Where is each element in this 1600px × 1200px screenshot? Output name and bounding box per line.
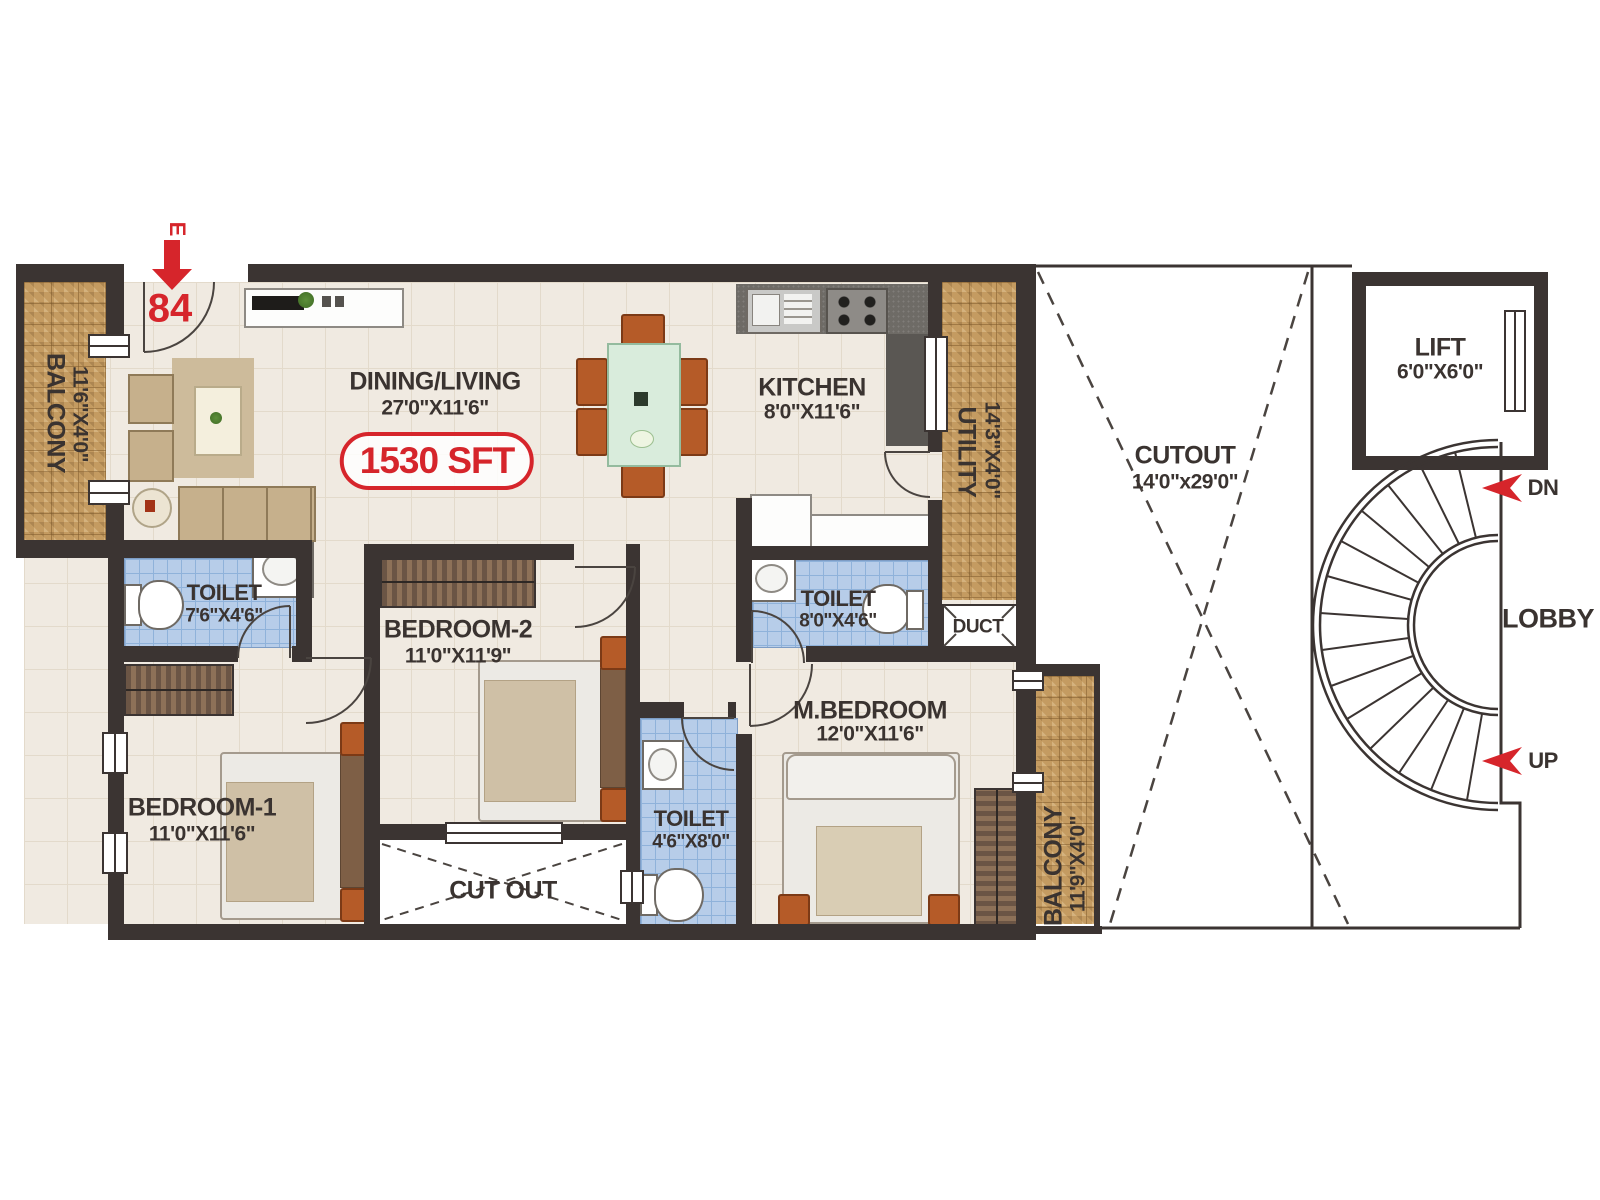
bedroom-1-label: BEDROOM-1 [128,796,276,821]
utility-label: UTILITY [954,407,979,498]
cutout-large-label: CUTOUT [1135,444,1236,469]
utility-size: 14'3"X4'0" [982,401,1003,498]
area-stamp: 1530 SFT [340,432,534,490]
stair-steps [1320,452,1482,800]
spiral-staircase [1313,440,1498,810]
kitchen-size: 8'0"X11'6" [764,402,860,423]
bedroom-1-size: 11'0"X11'6" [149,824,255,845]
cut-out-small-label: CUT OUT [449,879,557,904]
duct-label: DUCT [953,618,1004,637]
lift-size: 6'0"X6'0" [1397,362,1483,383]
toilet-master-size: 4'6"X8'0" [652,833,730,852]
kitchen-label: KITCHEN [758,376,866,401]
m-bedroom-label: M.BEDROOM [793,699,947,724]
balcony-bottom-label: BALCONY [1042,806,1067,926]
bedroom-2-size: 11'0"X11'9" [405,646,511,667]
m-bedroom-size: 12'0"X11'6" [816,724,923,745]
lift-label: LIFT [1415,336,1466,361]
dining-living-label: DINING/LIVING [349,370,520,395]
balcony-left-label: BALCONY [43,353,68,473]
lobby-label: LOBBY [1502,606,1594,633]
cutout-large-size: 14'0"x29'0" [1132,472,1238,493]
toilet-common-label: TOILET [187,582,262,604]
floor-plan: DINING/LIVING 27'0"X11'6" 1530 SFT KITCH… [0,0,1600,1200]
stairs-up-label: UP [1528,750,1558,772]
stairs-down-label: DN [1528,477,1559,499]
toilet-common-size: 7'6"X4'6" [185,607,263,626]
unit-number: 84 [148,287,193,332]
entry-marker: E [164,222,190,237]
balcony-left-size: 11'6"X4'0" [70,366,91,462]
toilet-attached-size: 8'0"X4'6" [799,612,877,631]
toilet-master-label: TOILET [654,808,729,830]
toilet-attached-label: TOILET [801,588,876,610]
bedroom-2-label: BEDROOM-2 [384,618,532,643]
dining-living-size: 27'0"X11'6" [381,398,488,419]
balcony-bottom-size: 11'9"X4'0" [1068,816,1089,912]
